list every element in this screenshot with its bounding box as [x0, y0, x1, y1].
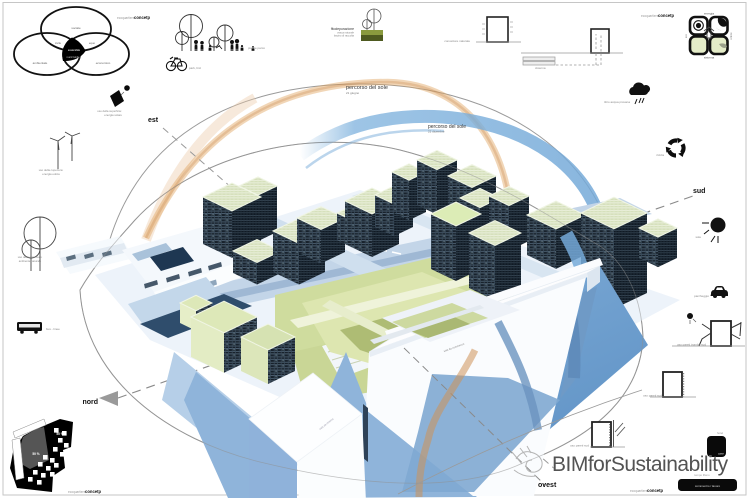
svg-text:equo: equo: [89, 41, 96, 45]
svg-text:energia eolica: energia eolica: [42, 172, 60, 176]
svg-text:civile: civile: [55, 41, 62, 45]
svg-text:energia: energia: [704, 12, 714, 16]
svg-text:realizzabile: realizzabile: [67, 55, 81, 59]
svg-text:cisterna: cisterna: [535, 66, 546, 70]
svg-text:ecoquartiere: ecoquartiere: [630, 489, 648, 493]
svg-text:concetp: concetp: [85, 489, 101, 494]
svg-text:ecoquartiere: ecoquartiere: [117, 16, 135, 20]
svg-text:piazze parco: piazze parco: [248, 46, 265, 50]
svg-text:uso pareti trombe sud: uso pareti trombe sud: [677, 343, 706, 347]
svg-text:energia solare: energia solare: [104, 113, 122, 117]
svg-text:uso pareti sud: uso pareti sud: [643, 394, 662, 398]
svg-text:hotel: hotel: [717, 431, 723, 435]
svg-text:acqua: acqua: [730, 32, 733, 40]
svg-text:sostenibile: sostenibile: [68, 48, 81, 52]
svg-text:ricicla: ricicla: [656, 153, 664, 157]
svg-text:ambientale: ambientale: [33, 61, 48, 65]
svg-text:concetp: concetp: [658, 13, 674, 18]
svg-text:sole: sole: [695, 235, 701, 239]
svg-text:concetp: concetp: [134, 15, 150, 20]
svg-text:sud: sud: [693, 188, 705, 195]
svg-text:sociale: sociale: [71, 26, 81, 30]
svg-text:ritiro acqua piovana: ritiro acqua piovana: [604, 100, 631, 104]
svg-text:ecoquartiere: ecoquartiere: [641, 14, 659, 18]
svg-text:concetp: concetp: [647, 488, 663, 493]
svg-text:fitodepurazione: fitodepurazione: [331, 27, 354, 31]
svg-text:21 giugno: 21 giugno: [346, 91, 360, 95]
svg-text:bus - linee: bus - linee: [46, 327, 60, 331]
svg-text:21 dicembre: 21 dicembre: [428, 130, 445, 134]
svg-text:commercio / lavoro: commercio / lavoro: [695, 484, 721, 488]
svg-text:convettore naturale: convettore naturale: [444, 39, 470, 43]
svg-text:est: est: [148, 117, 159, 124]
svg-text:eco: eco: [685, 33, 688, 38]
svg-text:economico: economico: [96, 61, 111, 65]
svg-text:ecoquartiere: ecoquartiere: [68, 490, 86, 494]
svg-text:ambiente naturale: ambiente naturale: [19, 259, 42, 263]
svg-text:50 %: 50 %: [56, 432, 63, 436]
svg-text:bacino di raccolta: bacino di raccolta: [334, 34, 355, 38]
svg-text:nord: nord: [82, 399, 98, 406]
svg-text:sistema: sistema: [704, 56, 715, 60]
svg-text:BIMforSustainability: BIMforSustainability: [552, 453, 729, 476]
svg-text:ovest: ovest: [538, 482, 557, 489]
svg-text:50 %: 50 %: [32, 452, 39, 456]
svg-text:parcheggio: parcheggio: [694, 294, 709, 298]
svg-text:park, bici: park, bici: [189, 66, 201, 70]
svg-text:uso pareti sud: uso pareti sud: [570, 444, 589, 448]
